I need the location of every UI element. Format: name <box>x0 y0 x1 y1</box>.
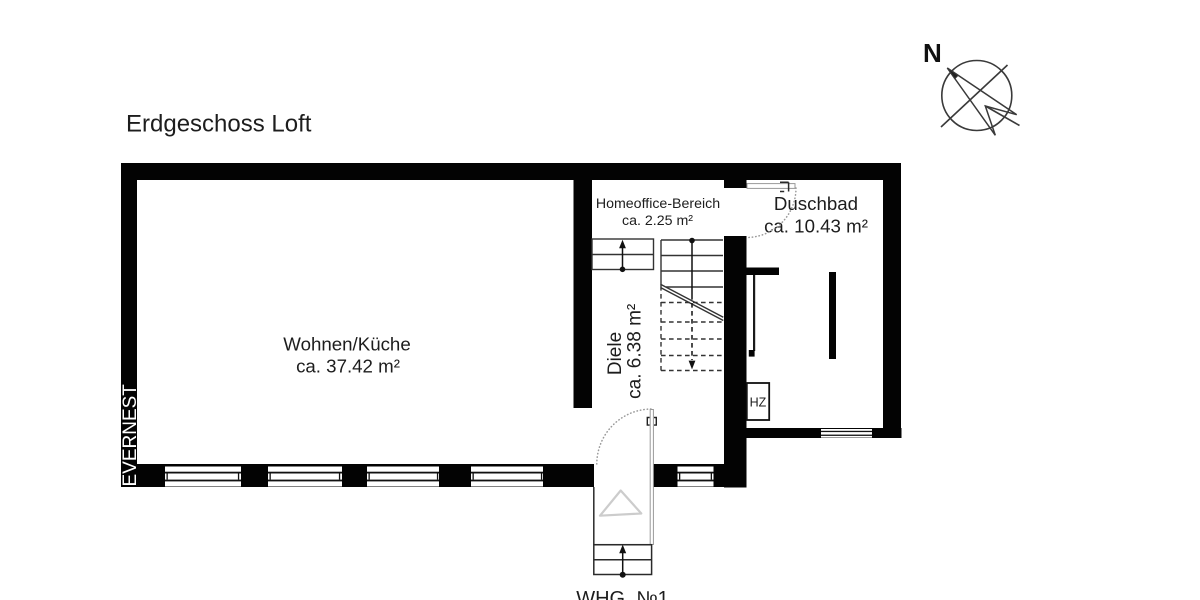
svg-text:Wohnen/Küche: Wohnen/Küche <box>283 334 410 355</box>
svg-text:ca. 10.43 m²: ca. 10.43 m² <box>764 216 868 237</box>
svg-text:ca. 37.42 m²: ca. 37.42 m² <box>296 355 400 376</box>
svg-text:Erdgeschoss Loft: Erdgeschoss Loft <box>126 111 312 138</box>
svg-text:WHG. №1: WHG. №1 <box>576 588 669 600</box>
svg-text:EVERNEST: EVERNEST <box>120 384 141 487</box>
svg-text:ca. 2.25 m²: ca. 2.25 m² <box>622 213 693 229</box>
svg-text:N: N <box>923 38 942 68</box>
svg-text:Diele: Diele <box>605 332 626 375</box>
svg-text:Duschbad: Duschbad <box>774 193 858 214</box>
svg-text:HZ: HZ <box>750 396 767 410</box>
svg-text:ca. 6.38 m²: ca. 6.38 m² <box>625 304 646 399</box>
svg-text:Homeoffice-Bereich: Homeoffice-Bereich <box>596 196 720 212</box>
